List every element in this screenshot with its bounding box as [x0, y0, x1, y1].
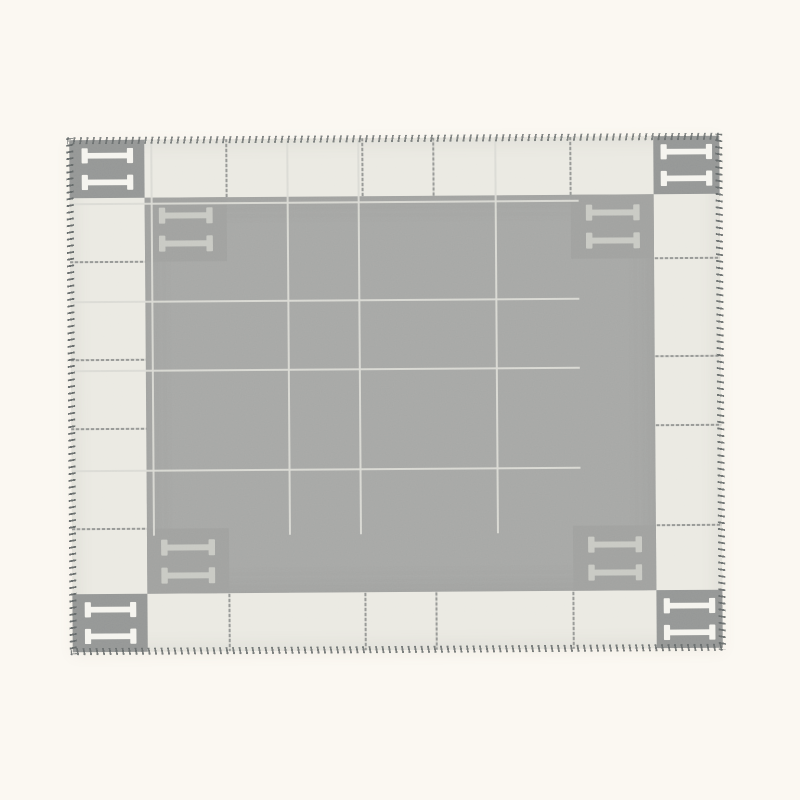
corner-block-bottom-right: [656, 590, 722, 648]
corner-block-bottom-left: [72, 594, 147, 653]
h-motif-icon: [84, 602, 136, 644]
h-motif-icon: [585, 203, 639, 249]
h-motif-icon: [161, 538, 215, 584]
inner-block-top-left: [145, 197, 227, 262]
inner-block-top-right: [571, 194, 654, 259]
h-motif-icon: [81, 148, 133, 190]
product-photo-canvas: [0, 0, 800, 800]
blanket: [69, 136, 723, 653]
corner-block-top-right: [653, 136, 719, 194]
h-motif-icon: [587, 535, 641, 581]
inner-block-bottom-left: [147, 528, 229, 594]
h-motif-icon: [660, 144, 712, 186]
h-motif-icon: [159, 206, 213, 252]
corner-block-top-left: [69, 140, 144, 199]
h-motif-icon: [663, 598, 715, 640]
inner-block-bottom-right: [573, 525, 656, 591]
